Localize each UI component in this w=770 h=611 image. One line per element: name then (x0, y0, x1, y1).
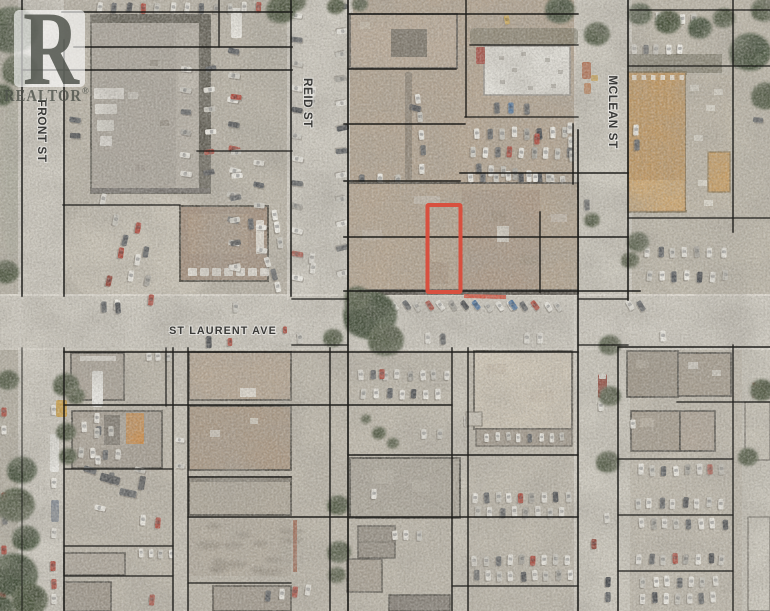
svg-text:®: ® (82, 86, 89, 96)
svg-text:MCLEAN ST: MCLEAN ST (606, 75, 620, 149)
svg-text:REID ST: REID ST (301, 78, 315, 128)
svg-text:REALTOR: REALTOR (4, 86, 82, 105)
svg-text:FRONT ST: FRONT ST (35, 100, 49, 163)
svg-text:ST LAURENT AVE: ST LAURENT AVE (169, 325, 277, 337)
